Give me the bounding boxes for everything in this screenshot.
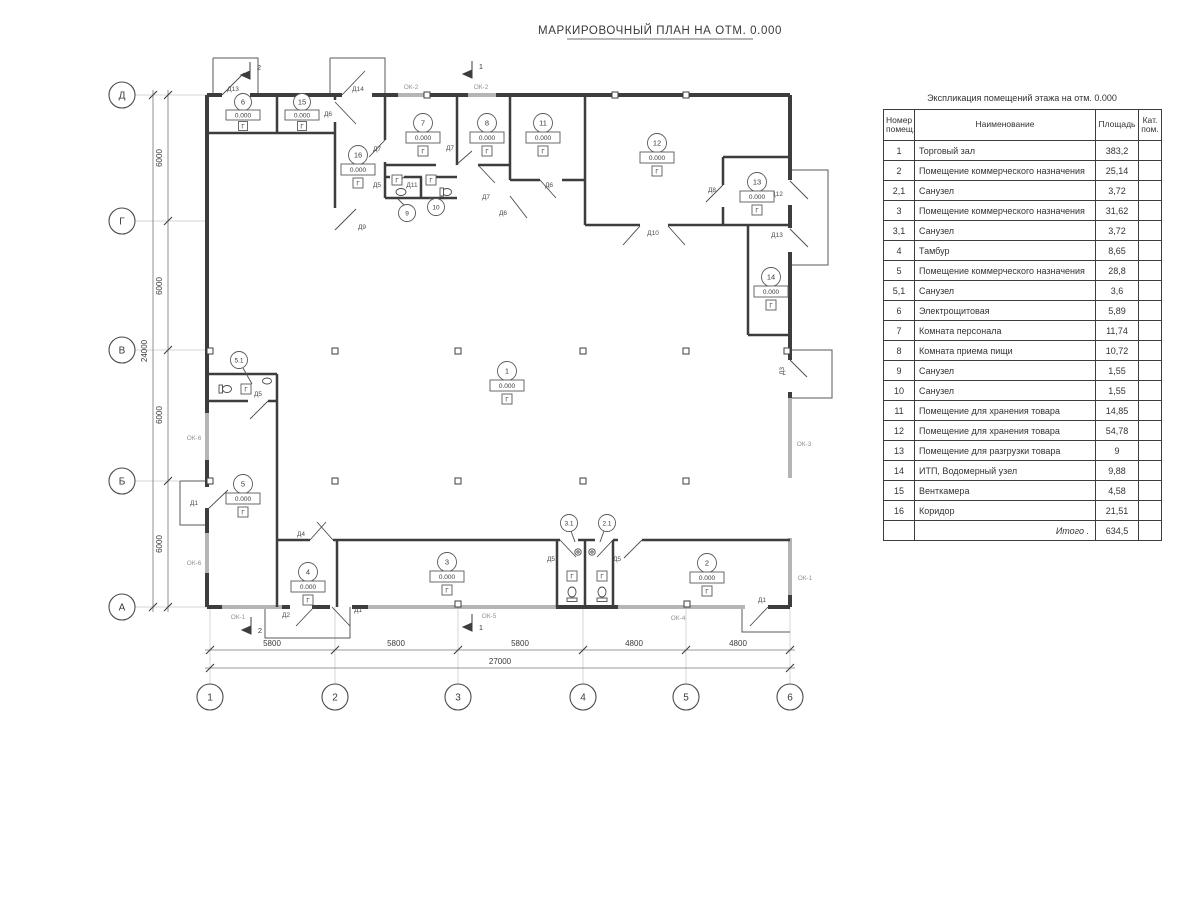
door-label: Д5 (373, 182, 381, 189)
section-mark-label: 1 (479, 623, 483, 632)
table-row: 5,1Санузел3,6 (884, 281, 1162, 301)
table-row: 13Помещение для разгрузки товара9 (884, 441, 1162, 461)
cell-area: 31,62 (1096, 201, 1139, 221)
elevation-value: 0.000 (649, 155, 666, 162)
dim-label: 5800 (387, 639, 405, 648)
dim-label: 6000 (155, 277, 164, 295)
cell-num: 16 (884, 501, 915, 521)
room-number: 5.1 (234, 358, 243, 365)
axis-label: 3 (455, 693, 461, 704)
elevation-value: 0.000 (300, 584, 317, 591)
table-row: 11Помещение для хранения товара14,85 (884, 401, 1162, 421)
cell-area: 10,72 (1096, 341, 1139, 361)
cell-num: 11 (884, 401, 915, 421)
cell-name: Тамбур (915, 241, 1096, 261)
cell-num: 3 (884, 201, 915, 221)
cell-num: 5,1 (884, 281, 915, 301)
cell-area: 3,72 (1096, 181, 1139, 201)
door-label: Д1 (354, 607, 362, 614)
cell-cat (1139, 181, 1162, 201)
axis-label: 4 (580, 693, 586, 704)
door-leaves (207, 71, 808, 626)
elevation-value: 0.000 (499, 383, 516, 390)
cell-name: Помещение коммерческого назначения (915, 201, 1096, 221)
axis-label: А (119, 603, 126, 614)
room-number: 2 (705, 559, 709, 568)
cell-num: 10 (884, 381, 915, 401)
cell-cat (1139, 421, 1162, 441)
table-row: 4Тамбур8,65 (884, 241, 1162, 261)
table-row: 15Венткамера4,58 (884, 481, 1162, 501)
cell-cat (1139, 141, 1162, 161)
cell-name: Санузел (915, 221, 1096, 241)
room-number: 6 (241, 98, 245, 107)
door-label: Д7 (446, 145, 454, 152)
axis-label: 6 (787, 693, 793, 704)
cell-cat (1139, 401, 1162, 421)
table-row: 16Коридор21,51 (884, 501, 1162, 521)
elevation-value: 0.000 (699, 575, 716, 582)
room-number: 15 (298, 98, 306, 107)
room-marker-15: 15 0.000 Г (285, 94, 319, 131)
cell-num: 4 (884, 241, 915, 261)
table-row: 2Помещение коммерческого назначения25,14 (884, 161, 1162, 181)
cell-cat (1139, 321, 1162, 341)
room-number: 10 (432, 205, 440, 212)
door-label: Д6 (499, 210, 507, 217)
window-label: ОК-2 (474, 84, 489, 91)
cell-cat (1139, 161, 1162, 181)
cell-name: Помещение коммерческого назначения (915, 261, 1096, 281)
cell-name: Санузел (915, 361, 1096, 381)
axis-col-bubbles: 1 2 3 4 5 6 (197, 684, 803, 710)
cell-cat (1139, 481, 1162, 501)
table-row: 14ИТП, Водомерный узел9,88 (884, 461, 1162, 481)
col-header-name: Наименование (915, 110, 1096, 141)
table-row: 7Комната персонала11,74 (884, 321, 1162, 341)
walls-windows (207, 95, 790, 607)
cell-cat (1139, 241, 1162, 261)
dim-label: 5800 (263, 639, 281, 648)
dim-label: 5800 (511, 639, 529, 648)
room-marker-12: 12 0.000 Г (640, 134, 674, 177)
cell-cat (1139, 501, 1162, 521)
cell-area: 9 (1096, 441, 1139, 461)
toilet-icon (598, 587, 606, 597)
cell-name: Помещение коммерческого назначения (915, 161, 1096, 181)
sink-icon (263, 378, 272, 384)
cell-area: 5,89 (1096, 301, 1139, 321)
room-number: 12 (653, 139, 661, 148)
cell-name: Санузел (915, 181, 1096, 201)
page-title: МАРКИРОВОЧНЫЙ ПЛАН НА ОТМ. 0.000 (538, 24, 782, 37)
room-number: 13 (753, 178, 761, 187)
room-marker-11: 11 0.000 Г (526, 114, 560, 157)
cell-cat (1139, 381, 1162, 401)
section-mark-label: 2 (258, 626, 262, 635)
door-label: Д9 (358, 224, 366, 231)
window-label: ОК-1 (798, 575, 813, 582)
room-number: 14 (767, 273, 775, 282)
dim-total-label: 24000 (140, 339, 149, 362)
door-label: Д13 (227, 86, 239, 93)
cell-cat (1139, 341, 1162, 361)
table-row: 1Торговый зал383,2 (884, 141, 1162, 161)
elevation-value: 0.000 (235, 113, 252, 120)
cell-cat (1139, 221, 1162, 241)
cell-num: 9 (884, 361, 915, 381)
dim-label: 6000 (155, 535, 164, 553)
room-marker-8: 8 0.000 Г (470, 114, 504, 157)
door-label: Д3 (779, 367, 786, 375)
room-number: 9 (405, 211, 409, 218)
room-marker-16: 16 0.000 Г (341, 146, 375, 189)
col-header-cat: Кат. пом. (1139, 110, 1162, 141)
floor-type-boxes: Г Г Г Г Г (241, 175, 607, 581)
cell-area: 4,58 (1096, 481, 1139, 501)
window-label: ОК-5 (482, 613, 497, 620)
room-number: 1 (505, 367, 509, 376)
walls-exterior (207, 95, 790, 607)
cell-area: 28,8 (1096, 261, 1139, 281)
table-row: 9Санузел1,55 (884, 361, 1162, 381)
door-label: Д7 (482, 194, 490, 201)
section-mark-label: 2 (257, 63, 261, 72)
cell-name: Комната приема пищи (915, 341, 1096, 361)
door-label: Д1 (758, 597, 766, 604)
columns (207, 92, 790, 607)
axis-label: 5 (683, 693, 689, 704)
room-marker-5: 5 0.000 Г (226, 475, 260, 518)
room-number: 16 (354, 151, 362, 160)
door-label: Д7 (373, 146, 381, 153)
sink-icon (396, 189, 406, 196)
room-marker-6: 6 0.000 Г (226, 94, 260, 131)
elevation-value: 0.000 (535, 135, 552, 142)
cell-name: Помещение для хранения товара (915, 401, 1096, 421)
col-header-area: Площадь (1096, 110, 1139, 141)
axis-label: Г (119, 217, 125, 228)
cell-cat (1139, 521, 1162, 541)
elevation-value: 0.000 (415, 135, 432, 142)
total-value: 634,5 (1096, 521, 1139, 541)
walls-interior (207, 95, 790, 607)
dim-label: 4800 (729, 639, 747, 648)
window-label: ОК-1 (231, 614, 246, 621)
cell-name: Помещение для хранения товара (915, 421, 1096, 441)
door-label: Д2 (282, 612, 290, 619)
dim-label: 4800 (625, 639, 643, 648)
cell-num: 2 (884, 161, 915, 181)
cell-num: 6 (884, 301, 915, 321)
cell-cat (1139, 201, 1162, 221)
cell-num: 7 (884, 321, 915, 341)
table-total-row: Итого .634,5 (884, 521, 1162, 541)
elevation-value: 0.000 (749, 194, 766, 201)
door-label: Д6 (545, 182, 553, 189)
cell-name: Помещение для разгрузки товара (915, 441, 1096, 461)
cell-area: 9,88 (1096, 461, 1139, 481)
toilet-icon (223, 386, 232, 393)
total-label: Итого . (915, 521, 1096, 541)
room-number: 4 (306, 568, 310, 577)
door-label: Д11 (406, 182, 418, 189)
table-row: 10Санузел1,55 (884, 381, 1162, 401)
table-row: 6Электрощитовая5,89 (884, 301, 1162, 321)
table-row: 8Комната приема пищи10,72 (884, 341, 1162, 361)
cell-cat (1139, 301, 1162, 321)
axis-label: 1 (207, 693, 213, 704)
toilet-icon (568, 587, 576, 597)
section-mark-label: 1 (479, 62, 483, 71)
cell-name: Коридор (915, 501, 1096, 521)
room-number: 11 (539, 119, 547, 128)
elevation-value: 0.000 (294, 113, 311, 120)
cell-num: 5 (884, 261, 915, 281)
table-row: 3,1Санузел3,72 (884, 221, 1162, 241)
door-label: Д5 (254, 391, 262, 398)
elevation-value: 0.000 (479, 135, 496, 142)
cell-cat (1139, 461, 1162, 481)
cell-name: Комната персонала (915, 321, 1096, 341)
elevation-value: 0.000 (439, 574, 456, 581)
axis-label: Д (119, 91, 126, 102)
room-schedule-table: Номер помещ. Наименование Площадь Кат. п… (883, 109, 1162, 541)
room-marker-1: 1 0.000 Г (490, 362, 524, 405)
cell-num: 3,1 (884, 221, 915, 241)
door-label: Д10 (647, 230, 659, 237)
cell-area: 14,85 (1096, 401, 1139, 421)
door-label: Д4 (297, 531, 305, 538)
table-row: 3Помещение коммерческого назначения31,62 (884, 201, 1162, 221)
room-marker-2: 2 0.000 Г (690, 554, 724, 597)
elevation-value: 0.000 (235, 496, 252, 503)
axis-label: Б (119, 477, 126, 488)
cell-area: 3,72 (1096, 221, 1139, 241)
cell-name: ИТП, Водомерный узел (915, 461, 1096, 481)
cell-num: 15 (884, 481, 915, 501)
cell-cat (1139, 441, 1162, 461)
room-number: 8 (485, 119, 489, 128)
cell-num: 13 (884, 441, 915, 461)
room-number: 7 (421, 119, 425, 128)
cell-cat (1139, 261, 1162, 281)
cell-area: 11,74 (1096, 321, 1139, 341)
cell-num: 12 (884, 421, 915, 441)
cell-num: 14 (884, 461, 915, 481)
dim-label: 6000 (155, 149, 164, 167)
cell-area: 21,51 (1096, 501, 1139, 521)
cell-num: 1 (884, 141, 915, 161)
room-marker-3: 3 0.000 Г (430, 553, 464, 596)
table-row: 12Помещение для хранения товара54,78 (884, 421, 1162, 441)
col-header-number: Номер помещ. (884, 110, 915, 141)
cell-area: 8,65 (1096, 241, 1139, 261)
window-label: ОК-2 (404, 84, 419, 91)
dimension-ticks (149, 91, 794, 672)
cell-area: 3,6 (1096, 281, 1139, 301)
table-title: Экспликация помещений этажа на отм. 0.00… (883, 93, 1161, 103)
dim-total-label: 27000 (489, 657, 512, 666)
room-marker-14: 14 0.000 Г (754, 268, 788, 311)
cell-num: 8 (884, 341, 915, 361)
door-label: Д6 (324, 111, 332, 118)
door-label: Д5 (613, 556, 621, 563)
room-marker-4: 4 0.000 Г (291, 563, 325, 606)
room-number: 5 (241, 480, 245, 489)
door-label: Д1 (190, 500, 198, 507)
door-label: Д14 (352, 86, 364, 93)
axis-label: В (119, 346, 126, 357)
cell-num: 2,1 (884, 181, 915, 201)
window-label: ОК-3 (797, 441, 812, 448)
room-number: 3 (445, 558, 449, 567)
axis-row-bubbles: Д Г В Б А (109, 82, 135, 620)
elevation-value: 0.000 (763, 289, 780, 296)
elevation-value: 0.000 (350, 167, 367, 174)
cell-area: 383,2 (1096, 141, 1139, 161)
cell-name: Венткамера (915, 481, 1096, 501)
room-number: 3.1 (564, 521, 573, 528)
table-header-row: Номер помещ. Наименование Площадь Кат. п… (884, 110, 1162, 141)
cell-area: 25,14 (1096, 161, 1139, 181)
axis-label: 2 (332, 693, 338, 704)
cell-cat (1139, 361, 1162, 381)
window-label: ОК-6 (187, 435, 202, 442)
table-row: 2,1Санузел3,72 (884, 181, 1162, 201)
axis-lines (135, 95, 790, 684)
door-label: Д5 (547, 556, 555, 563)
leader-markers: 5.1 3.1 2.1 9 10 (231, 197, 616, 542)
window-label: ОК-6 (187, 560, 202, 567)
cell-name: Санузел (915, 381, 1096, 401)
table-row: 5Помещение коммерческого назначения28,8 (884, 261, 1162, 281)
door-label: Д13 (771, 232, 783, 239)
cell-cat (1139, 281, 1162, 301)
drawing-sheet: МАРКИРОВОЧНЫЙ ПЛАН НА ОТМ. 0.000 (0, 0, 1200, 900)
cell-name: Санузел (915, 281, 1096, 301)
cell-num (884, 521, 915, 541)
cell-area: 1,55 (1096, 381, 1139, 401)
room-marker-13: 13 0.000 Г (740, 173, 774, 216)
cell-name: Электрощитовая (915, 301, 1096, 321)
cell-area: 54,78 (1096, 421, 1139, 441)
room-marker-7: 7 0.000 Г (406, 114, 440, 157)
window-label: ОК-4 (671, 615, 686, 622)
cell-name: Торговый зал (915, 141, 1096, 161)
room-number: 2.1 (602, 521, 611, 528)
door-label: Д8 (708, 187, 716, 194)
cell-area: 1,55 (1096, 361, 1139, 381)
dim-label: 6000 (155, 406, 164, 424)
